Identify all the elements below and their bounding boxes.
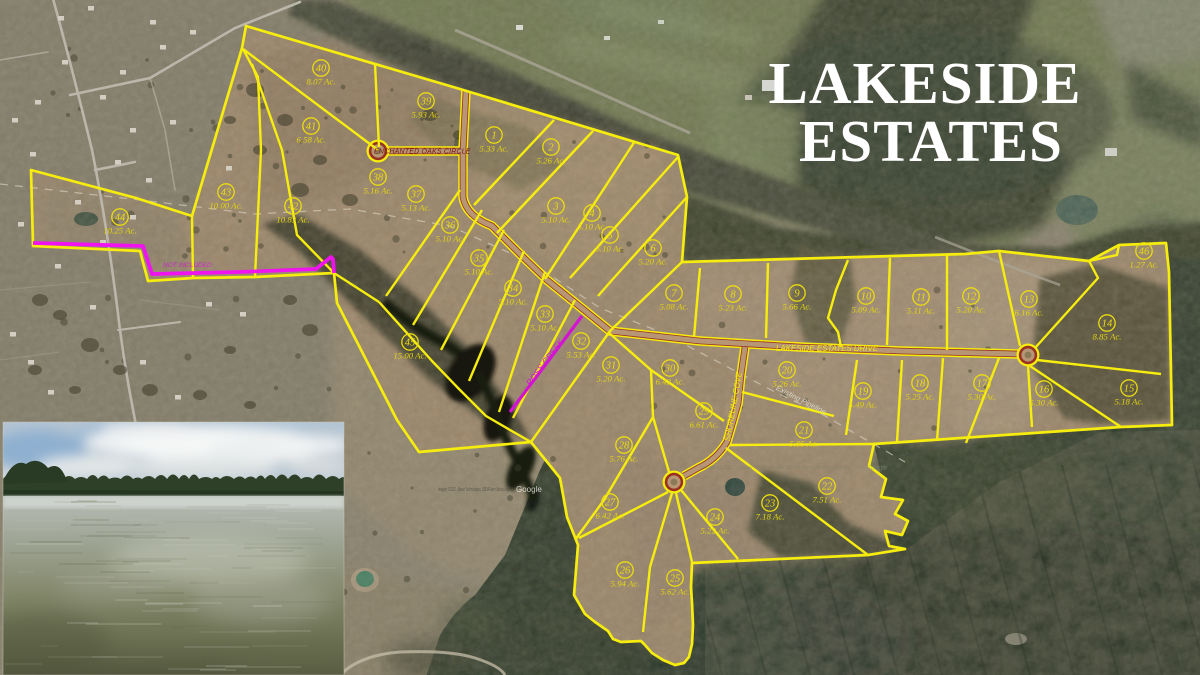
svg-text:29: 29 [699, 407, 710, 418]
svg-text:5.66 Ac.: 5.66 Ac. [783, 302, 812, 312]
svg-text:17: 17 [977, 379, 988, 390]
svg-text:1.27 Ac.: 1.27 Ac. [1130, 260, 1159, 270]
svg-text:21: 21 [799, 426, 810, 437]
svg-text:7.51 Ac.: 7.51 Ac. [813, 495, 842, 505]
svg-text:15.00 Ac.: 15.00 Ac. [393, 351, 426, 361]
svg-text:5.10 Ac.: 5.10 Ac. [578, 222, 607, 232]
svg-text:5.49 Ac.: 5.49 Ac. [849, 400, 878, 410]
svg-text:7.18 Ac.: 7.18 Ac. [756, 512, 785, 522]
svg-text:5.53 Ac.: 5.53 Ac. [567, 350, 596, 360]
svg-text:46: 46 [1139, 247, 1150, 258]
svg-text:5.26 Ac.: 5.26 Ac. [773, 379, 802, 389]
svg-text:43: 43 [221, 188, 232, 199]
svg-text:15: 15 [1124, 384, 1135, 395]
svg-text:39: 39 [420, 97, 432, 108]
svg-text:6.58 Ac.: 6.58 Ac. [297, 135, 326, 145]
svg-text:5.18 Ac.: 5.18 Ac. [1115, 397, 1144, 407]
svg-text:10.25 Ac.: 10.25 Ac. [103, 226, 136, 236]
svg-text:5.20 Ac.: 5.20 Ac. [957, 305, 986, 315]
svg-text:5.10 Ac.: 5.10 Ac. [436, 234, 465, 244]
svg-text:5.85 Ac.: 5.85 Ac. [790, 439, 819, 449]
svg-text:1: 1 [491, 131, 496, 142]
svg-text:5.10 Ac.: 5.10 Ac. [542, 215, 571, 225]
svg-text:19: 19 [858, 387, 869, 398]
svg-text:5.93 Ac.: 5.93 Ac. [412, 110, 441, 120]
svg-text:35: 35 [473, 254, 485, 265]
svg-text:ENCHANTED OAKS CIRCLE: ENCHANTED OAKS CIRCLE [374, 149, 471, 156]
svg-text:45: 45 [405, 338, 416, 349]
svg-text:27: 27 [605, 498, 616, 509]
svg-text:32: 32 [575, 337, 587, 348]
svg-text:Google: Google [865, 465, 888, 472]
svg-text:5.30 Ac.: 5.30 Ac. [968, 392, 997, 402]
svg-text:36: 36 [444, 221, 456, 232]
svg-text:20: 20 [782, 366, 793, 377]
svg-text:40: 40 [316, 64, 327, 75]
svg-text:5.09 Ac.: 5.09 Ac. [852, 305, 881, 315]
svg-text:16: 16 [1039, 385, 1050, 396]
svg-text:6.61 Ac.: 6.61 Ac. [690, 420, 719, 430]
svg-text:5: 5 [607, 231, 612, 242]
svg-text:LAKESIDE ESTATES DRIVE: LAKESIDE ESTATES DRIVE [776, 343, 878, 353]
svg-text:5.22 Ac.: 5.22 Ac. [701, 526, 730, 536]
svg-text:8.07 Ac.: 8.07 Ac. [307, 77, 336, 87]
svg-text:LAKESIDE: LAKESIDE [769, 50, 1082, 116]
svg-text:42: 42 [288, 202, 299, 213]
svg-text:5.20 Ac.: 5.20 Ac. [639, 257, 668, 267]
svg-text:23: 23 [765, 499, 776, 510]
svg-text:4: 4 [589, 209, 595, 220]
svg-text:24: 24 [710, 513, 721, 524]
svg-text:5.10 Ac.: 5.10 Ac. [499, 297, 528, 307]
svg-text:6.42 Ac.: 6.42 Ac. [596, 511, 625, 521]
svg-text:6: 6 [650, 244, 656, 255]
svg-text:5.94 Ac.: 5.94 Ac. [611, 579, 640, 589]
svg-text:5.20 Ac.: 5.20 Ac. [597, 374, 626, 384]
svg-text:10: 10 [861, 292, 872, 303]
svg-text:5.10 Ac.: 5.10 Ac. [465, 267, 494, 277]
svg-text:37: 37 [410, 190, 422, 201]
svg-text:6.16 Ac.: 6.16 Ac. [1015, 308, 1044, 318]
svg-text:8: 8 [730, 290, 736, 301]
svg-text:5.10 Ac.: 5.10 Ac. [531, 323, 560, 333]
svg-text:Imagery ©2022 , Maxar Technolo: Imagery ©2022 , Maxar Technologies, USDA… [700, 464, 850, 471]
svg-text:26: 26 [620, 566, 631, 577]
svg-text:22: 22 [822, 482, 833, 493]
svg-text:5.30 Ac.: 5.30 Ac. [1030, 398, 1059, 408]
svg-text:Google: Google [516, 485, 542, 494]
svg-text:9: 9 [794, 289, 800, 300]
svg-text:5.25 Ac.: 5.25 Ac. [906, 392, 935, 402]
svg-text:6.42 Ac.: 6.42 Ac. [656, 377, 685, 387]
svg-text:34: 34 [507, 284, 519, 295]
svg-text:10.83 Ac.: 10.83 Ac. [276, 215, 309, 225]
svg-text:2: 2 [548, 143, 554, 154]
svg-text:5.10 Ac.: 5.10 Ac. [596, 244, 625, 254]
svg-text:NOT INCLUDED: NOT INCLUDED [163, 262, 212, 269]
svg-text:44: 44 [115, 213, 126, 224]
svg-text:ESTATES: ESTATES [799, 108, 1063, 174]
svg-text:30: 30 [664, 364, 676, 375]
svg-text:13: 13 [1024, 295, 1035, 306]
svg-text:7: 7 [671, 289, 677, 300]
svg-text:5.26 Ac.: 5.26 Ac. [537, 156, 566, 166]
svg-text:25: 25 [670, 574, 681, 585]
svg-text:5.33 Ac.: 5.33 Ac. [480, 144, 509, 154]
svg-text:5.08 Ac.: 5.08 Ac. [660, 302, 689, 312]
svg-text:10.00 Ac.: 10.00 Ac. [209, 201, 242, 211]
svg-text:31: 31 [605, 361, 617, 372]
svg-text:14: 14 [1102, 319, 1113, 330]
svg-text:Imagery ©2022 , Maxar Technolo: Imagery ©2022 , Maxar Technologies, USDA… [438, 486, 514, 493]
svg-text:5.11 Ac.: 5.11 Ac. [907, 306, 935, 316]
svg-text:28: 28 [619, 441, 630, 452]
svg-text:41: 41 [306, 122, 317, 133]
svg-text:38: 38 [372, 173, 384, 184]
svg-text:5.23 Ac.: 5.23 Ac. [719, 303, 748, 313]
svg-text:5.76 Ac.: 5.76 Ac. [610, 454, 639, 464]
svg-text:18: 18 [915, 379, 926, 390]
svg-text:12: 12 [966, 292, 977, 303]
svg-text:33: 33 [539, 310, 551, 321]
svg-text:5.62 Ac.: 5.62 Ac. [661, 587, 690, 597]
svg-text:11: 11 [916, 293, 926, 304]
svg-text:8.85 Ac.: 8.85 Ac. [1093, 332, 1122, 342]
svg-text:3: 3 [552, 202, 558, 213]
svg-text:5.13 Ac.: 5.13 Ac. [402, 203, 431, 213]
svg-text:5.16 Ac.: 5.16 Ac. [364, 186, 393, 196]
